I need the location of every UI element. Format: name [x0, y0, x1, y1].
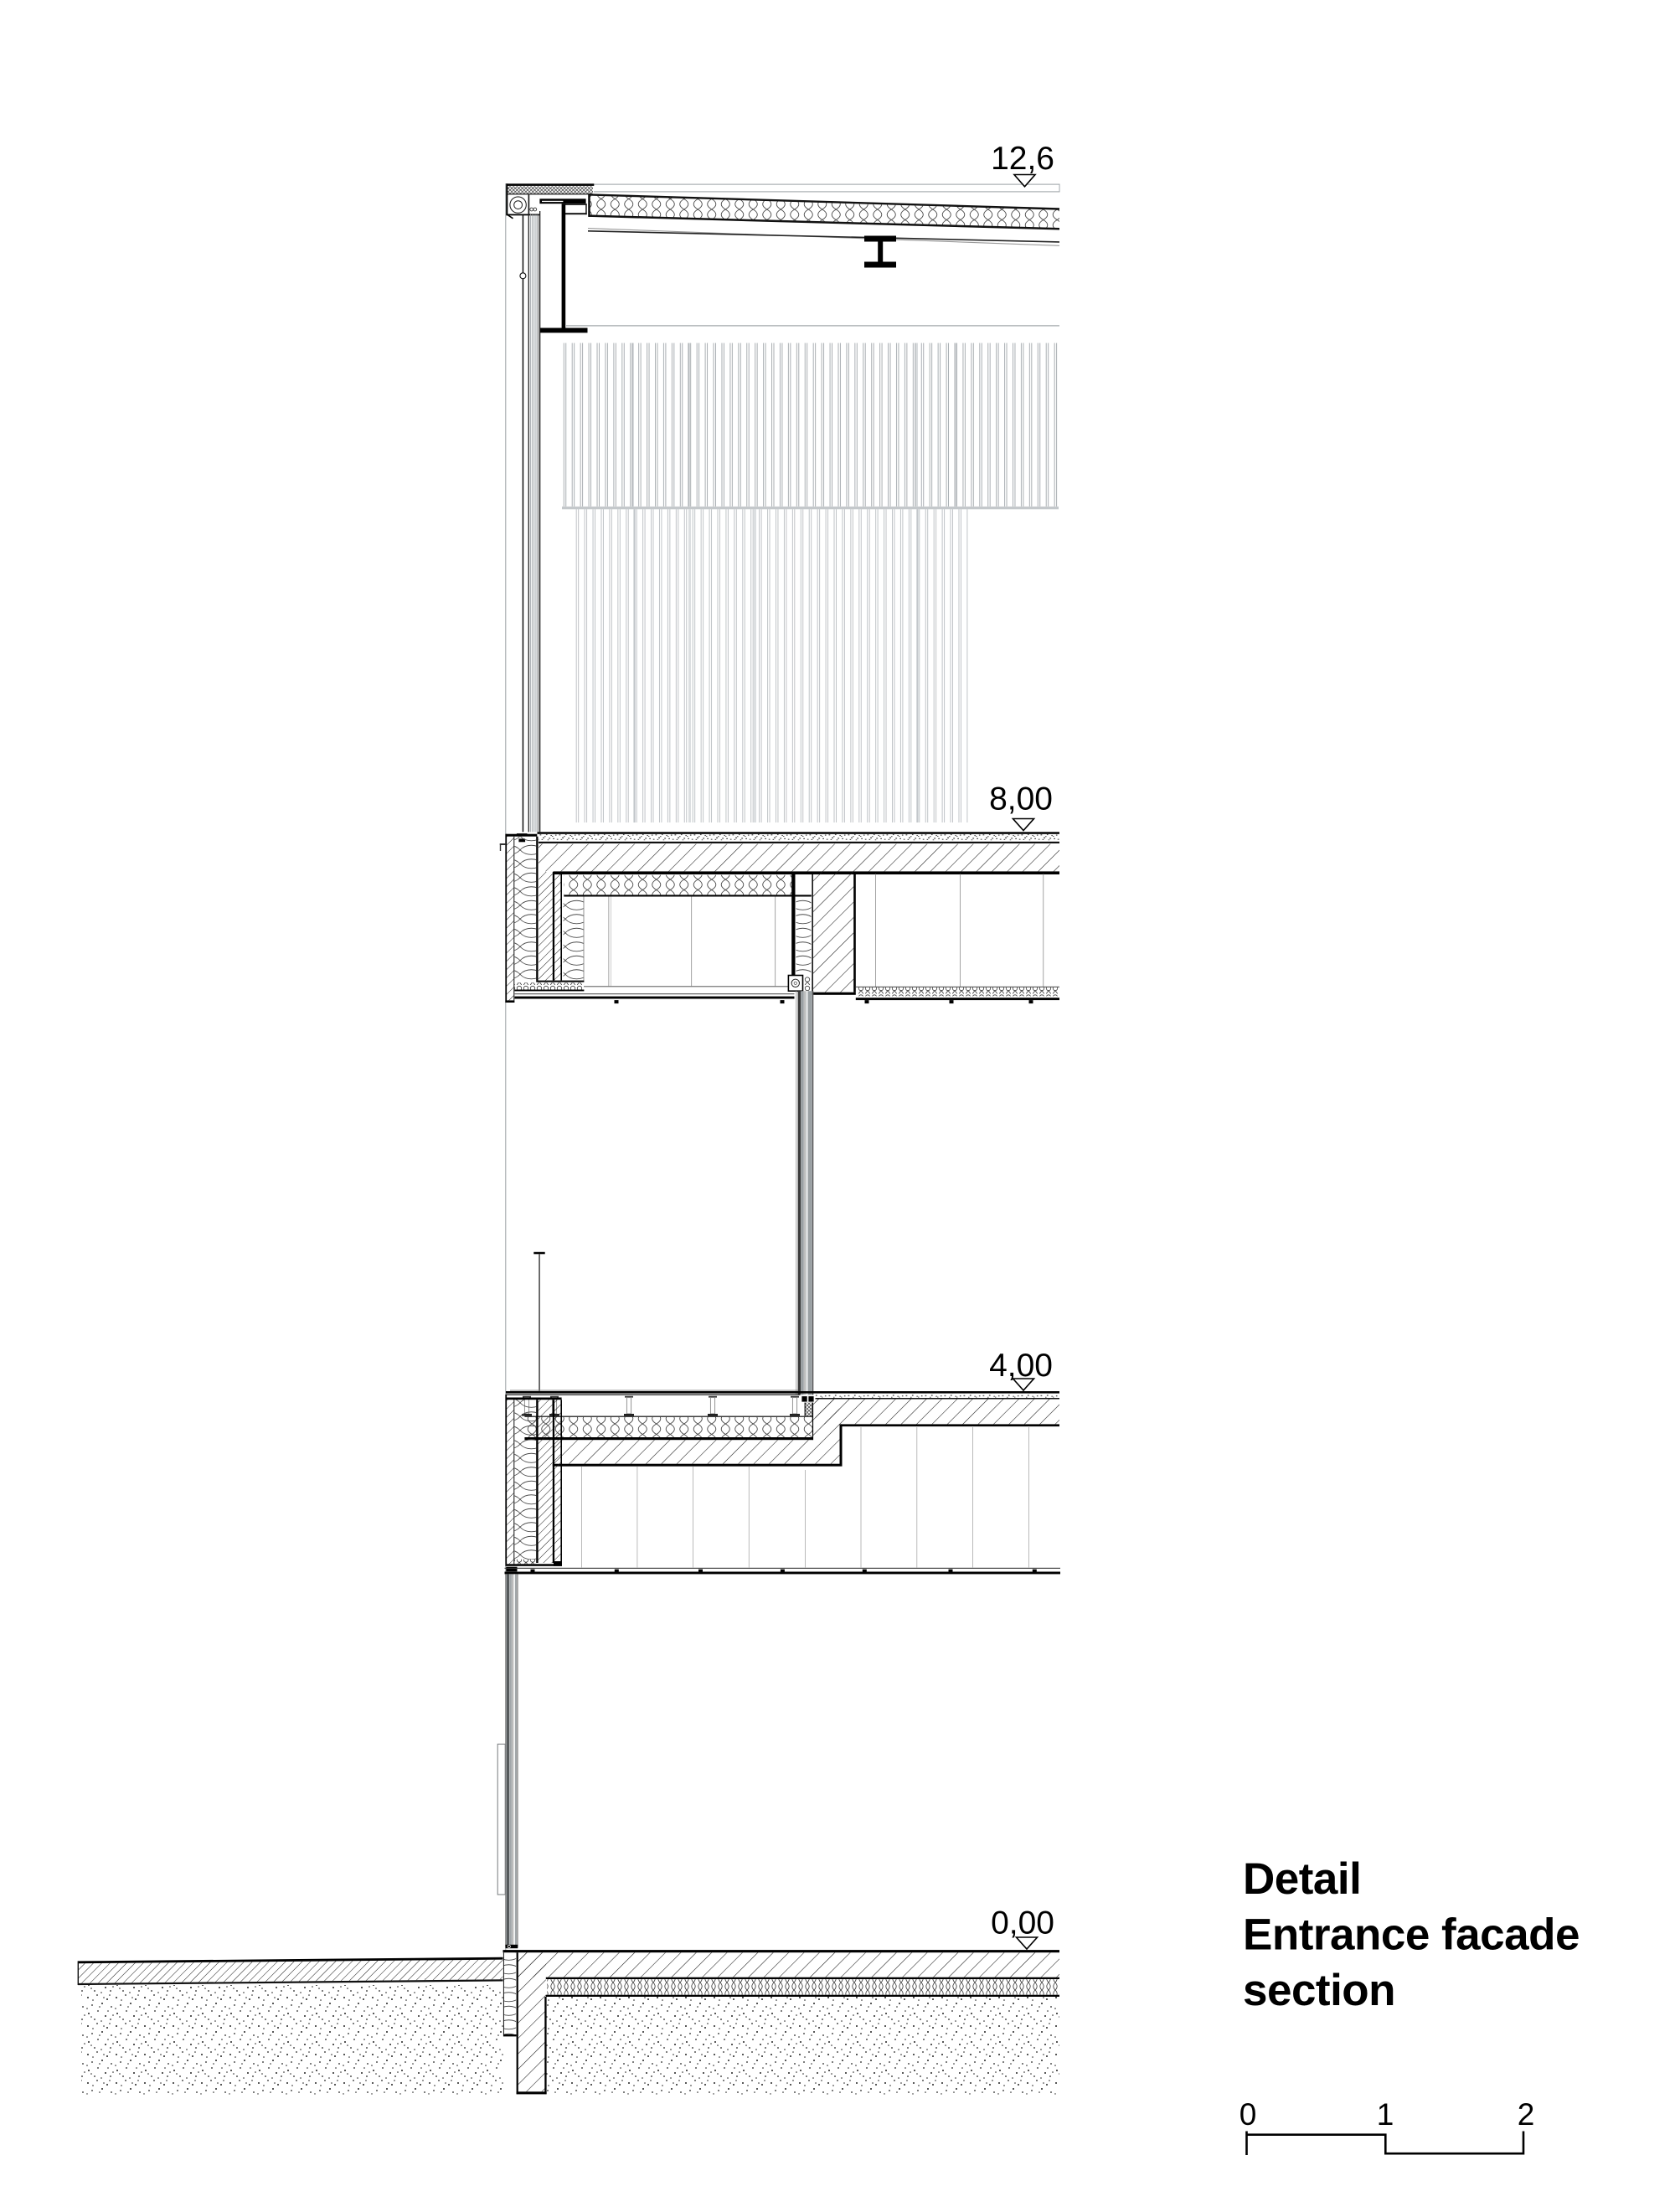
- svg-text:0: 0: [1239, 2097, 1257, 2132]
- svg-text:Entrance facade: Entrance facade: [1243, 1910, 1580, 1960]
- svg-text:0,00: 0,00: [991, 1905, 1054, 1941]
- svg-text:1: 1: [1377, 2097, 1394, 2132]
- svg-text:8,00: 8,00: [989, 781, 1053, 817]
- svg-text:section: section: [1243, 1966, 1395, 2015]
- svg-text:12,6: 12,6: [991, 141, 1054, 177]
- svg-text:2: 2: [1518, 2097, 1535, 2132]
- svg-text:Detail: Detail: [1243, 1854, 1361, 1904]
